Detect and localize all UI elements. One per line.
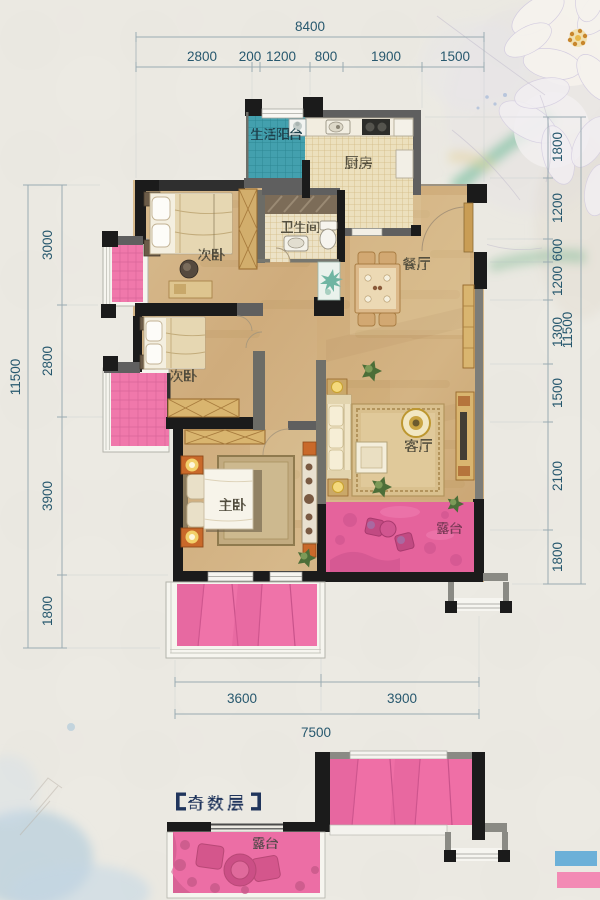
svg-text:1900: 1900 [371, 49, 401, 64]
svg-text:1200: 1200 [266, 49, 296, 64]
svg-text:200: 200 [239, 49, 262, 64]
svg-text:7500: 7500 [301, 725, 331, 740]
svg-text:11500: 11500 [560, 312, 575, 349]
svg-text:1800: 1800 [550, 542, 565, 572]
svg-text:3600: 3600 [227, 691, 257, 706]
svg-text:2800: 2800 [40, 346, 55, 376]
svg-text:2800: 2800 [187, 49, 217, 64]
svg-text:1500: 1500 [550, 378, 565, 408]
svg-text:2100: 2100 [550, 461, 565, 491]
svg-text:3000: 3000 [40, 230, 55, 260]
svg-text:8400: 8400 [295, 19, 325, 34]
svg-text:800: 800 [315, 49, 338, 64]
svg-text:600: 600 [550, 239, 565, 262]
svg-text:1800: 1800 [40, 596, 55, 626]
svg-text:1500: 1500 [440, 49, 470, 64]
svg-text:3900: 3900 [40, 481, 55, 511]
svg-text:11500: 11500 [8, 359, 23, 396]
svg-text:1200: 1200 [550, 266, 565, 296]
svg-text:1800: 1800 [550, 132, 565, 162]
svg-text:3900: 3900 [387, 691, 417, 706]
svg-text:1200: 1200 [550, 193, 565, 223]
